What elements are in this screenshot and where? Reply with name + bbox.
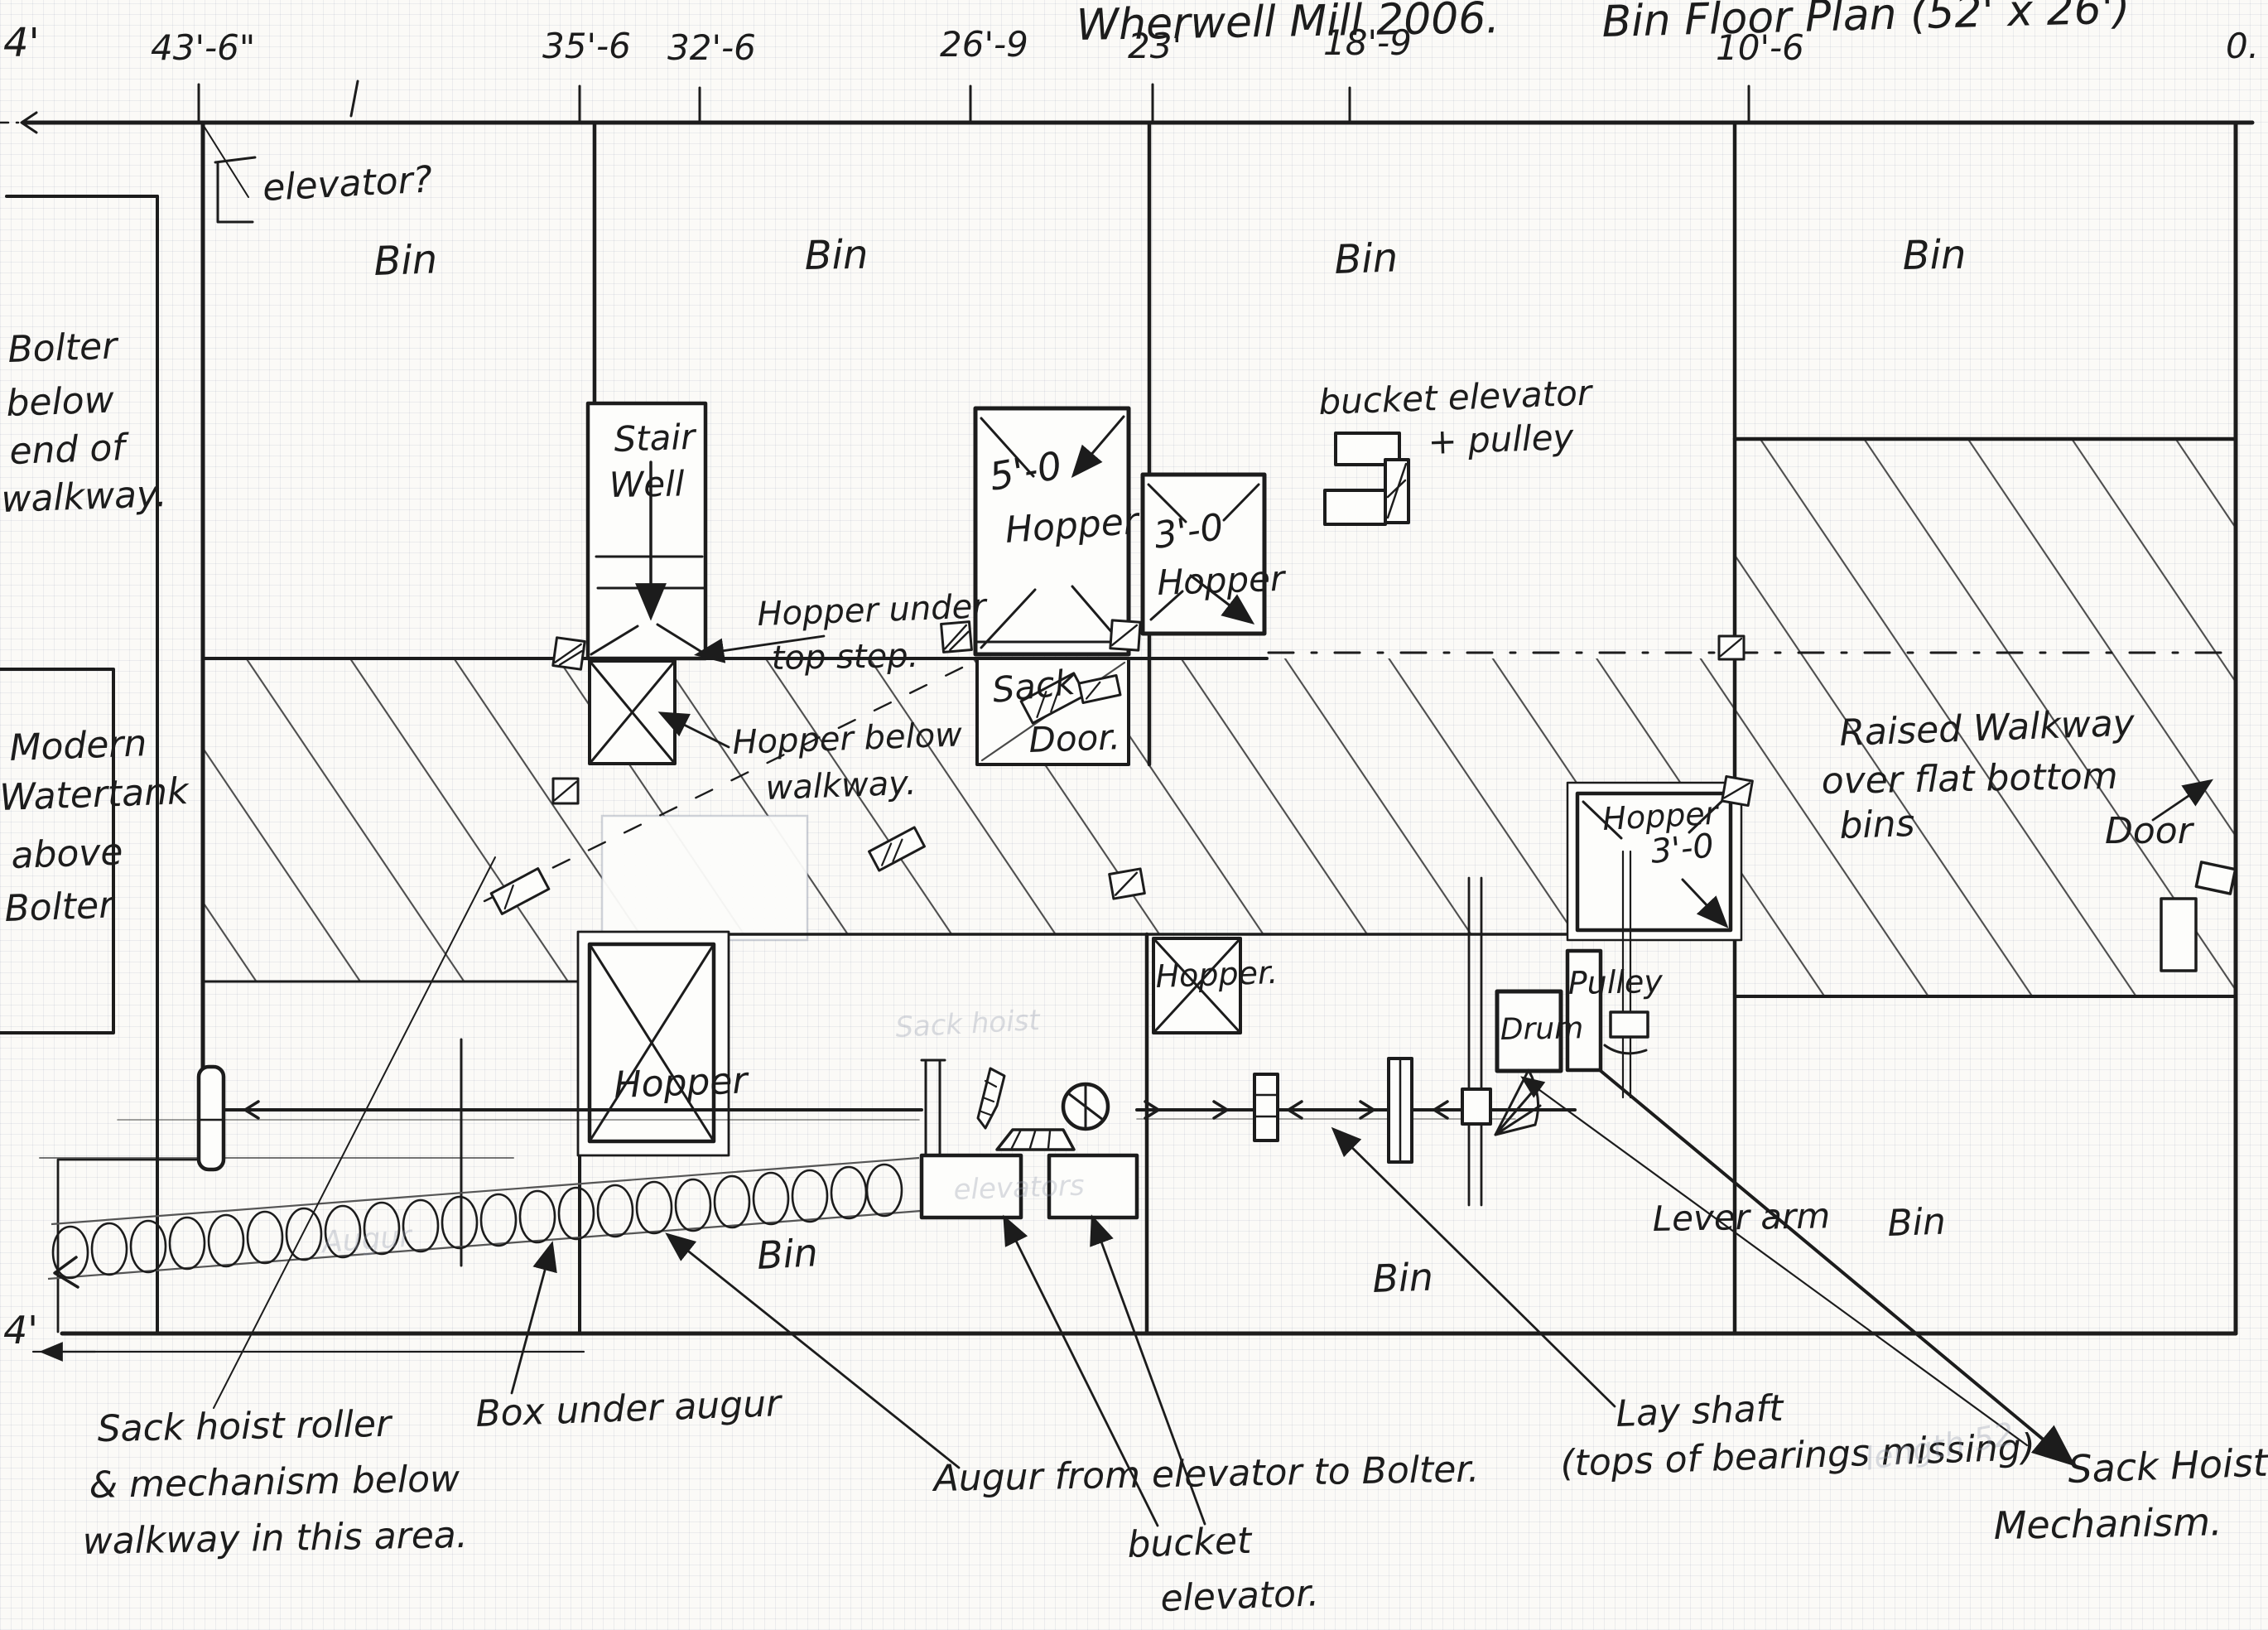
hopper-below-walkway-box [590,661,675,764]
dim-top-left: 4' [3,20,40,66]
lever-arm-label: Lever arm [1652,1195,1830,1239]
sack-door-line2: Door. [1028,716,1121,760]
fan-blade [978,1068,1004,1128]
watertank-line4: Bolter [4,884,117,930]
hopper-under-step-line2: top step. [771,637,918,678]
sack-hoist-roller-line2: & mechanism below [89,1458,460,1507]
sack-hoist-roller-line3: walkway in this area. [82,1514,468,1563]
watertank-line1: Modern [9,722,148,769]
elevator-bracket [204,126,255,222]
tick-10-6: 10'-6 [1716,27,1804,68]
tick-32-6: 32'-6 [667,27,756,68]
hopper-below-line1: Hopper below [732,716,963,762]
bucket-elevator-line2: elevator. [1160,1572,1320,1620]
hopper-3ft-word: Hopper [1157,558,1288,603]
raised-walkway-line2: over flat bottom [1821,755,2118,803]
door-right-label: Door [2105,810,2195,852]
bucket-elev-pulley-line2: + pulley [1428,417,1576,462]
bin-bottom-3: Bin [1887,1201,1947,1245]
bolter-note-line2: below [6,379,116,425]
tick-18-9: 18'-9 [1323,22,1412,63]
faint-erased-box [602,816,807,940]
tick-23: 23' [1128,26,1182,66]
elevator-query-label: elevator? [262,158,433,210]
bin-top-3: Bin [1333,234,1399,283]
bucket-elevator-pulley-structure [1325,433,1408,524]
box-under-augur-label: Box under augur [475,1382,784,1435]
bin-floor-plan-sketch: Wherwell Mill 2006. Bin Floor Plan (52' … [0,0,2268,1630]
stair-well-line2: Well [609,463,685,505]
tick-0: 0. [2226,26,2259,66]
tick-43-6: 43'-6" [151,27,255,68]
pulley-label: Pulley [1567,963,1663,1001]
shaft-pulley-a [1254,1074,1278,1141]
lay-shaft-line1: Lay shaft [1616,1387,1785,1435]
augur-note-label: Augur from elevator to Bolter. [931,1449,1479,1501]
bolter-note-line1: Bolter [7,325,120,371]
box-under-augur-arrow [512,1246,551,1393]
ruler-ticks [199,81,1749,123]
raised-walkway-line3: bins [1839,803,1916,847]
bucket-elev-pulley-line1: bucket elevator [1318,372,1595,422]
sack-hoist-mech-line1: Sack Hoist [2067,1440,2268,1492]
dim-bottom-left: 4' [3,1308,38,1353]
stair-well-line1: Stair [614,417,698,460]
hopper-lower-box [578,932,729,1155]
watertank-line3: above [11,831,124,877]
bin-top-1: Bin [373,236,438,285]
bolter-note-line4: walkway. [1,473,168,521]
end-pulley [199,1067,224,1169]
drum-label: Drum [1500,1011,1583,1047]
sack-hoist-roller-line1: Sack hoist roller [97,1403,393,1450]
bin-bottom-1: Bin [756,1230,819,1278]
bin-top-4: Bin [1902,232,1967,279]
tick-26-9: 26'-9 [940,24,1028,65]
bolter-note-line3: end of [9,427,131,473]
hopper-below-line2: walkway. [765,764,917,808]
drum-fan [1495,1070,1540,1135]
hopper-under-step-line1: Hopper under [757,587,989,634]
bucket-elevator-line1: bucket [1127,1520,1254,1566]
bin-bottom-2: Bin [1371,1254,1433,1301]
hopper-mid-label: Hopper. [1155,954,1278,995]
ghost-elevators: elevators [953,1169,1085,1207]
tick-35-6: 35'-6 [542,26,631,66]
floor-plan-canvas: Wherwell Mill 2006. Bin Floor Plan (52' … [0,0,2268,1630]
title-right: Bin Floor Plan (52' x 26') [1601,0,2131,47]
sack-hoist-mech-line2: Mechanism. [1993,1499,2222,1548]
bin-top-2: Bin [804,232,869,279]
ghost-sack-hoist: Sack hoist [894,1004,1042,1044]
hopper-3ft-right-size: 3'-0 [1649,827,1716,871]
hopper-lower-label: Hopper [614,1059,751,1107]
watertank-line2: Watertank [0,770,190,819]
ghost-augur: Augur [320,1219,415,1260]
